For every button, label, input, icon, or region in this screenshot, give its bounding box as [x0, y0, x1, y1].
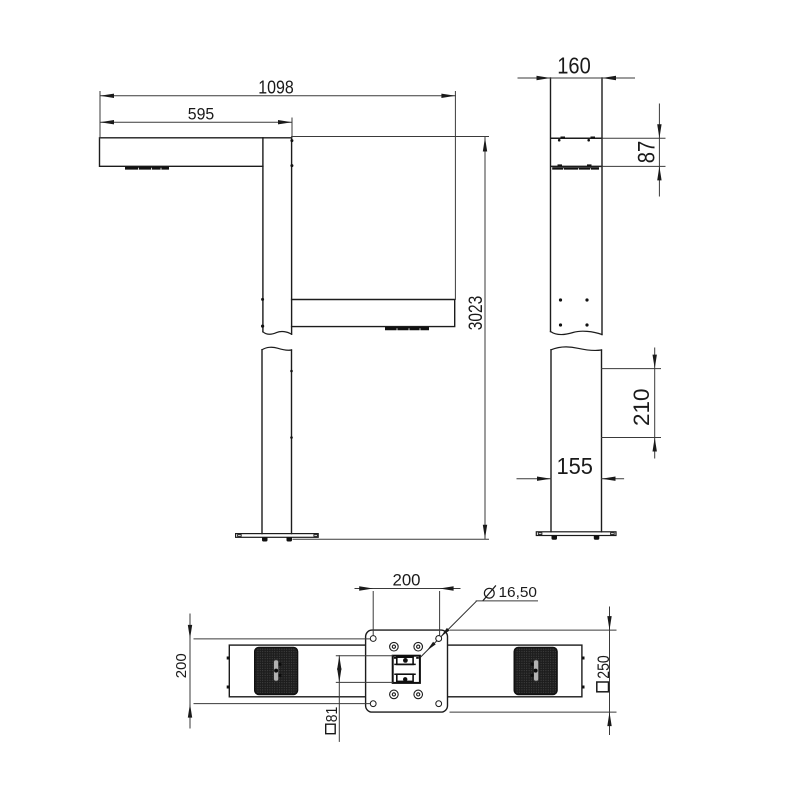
svg-text:200: 200	[393, 572, 421, 590]
svg-text:595: 595	[188, 104, 215, 123]
svg-text:160: 160	[557, 52, 591, 78]
svg-text:87: 87	[634, 141, 661, 164]
svg-text:3023: 3023	[466, 296, 487, 331]
svg-text:200: 200	[173, 653, 190, 678]
svg-text:1098: 1098	[258, 78, 294, 98]
svg-text:155: 155	[556, 453, 593, 479]
svg-text:210: 210	[629, 389, 654, 427]
svg-text:250: 250	[594, 655, 613, 679]
svg-text:16,50: 16,50	[499, 585, 538, 601]
svg-text:81: 81	[324, 707, 341, 723]
